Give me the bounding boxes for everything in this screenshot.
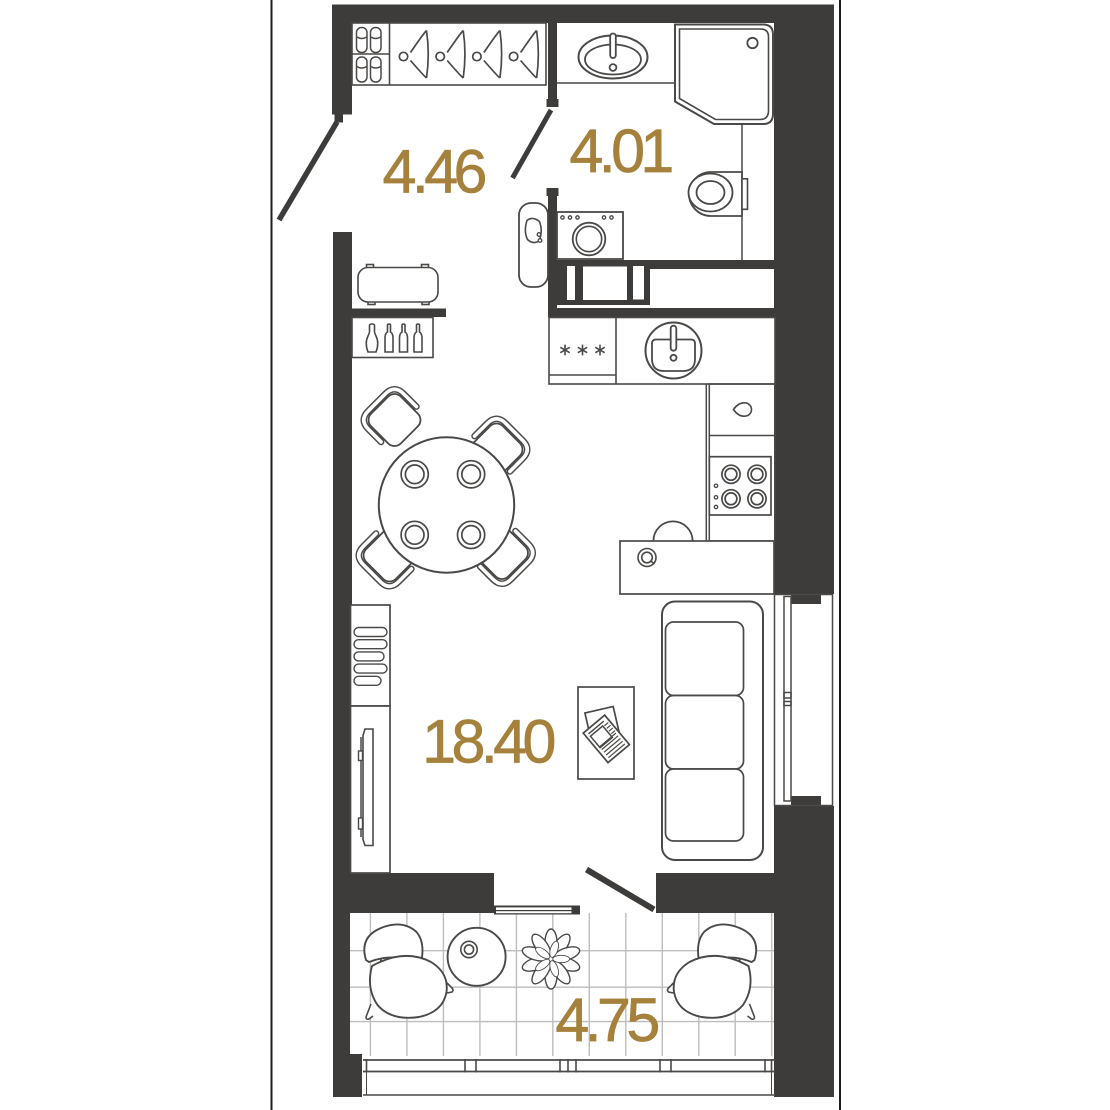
- svg-text:18.40: 18.40: [422, 708, 554, 776]
- svg-text:4.46: 4.46: [383, 138, 486, 206]
- svg-text:4.75: 4.75: [555, 986, 658, 1054]
- svg-text:4.01: 4.01: [569, 117, 671, 185]
